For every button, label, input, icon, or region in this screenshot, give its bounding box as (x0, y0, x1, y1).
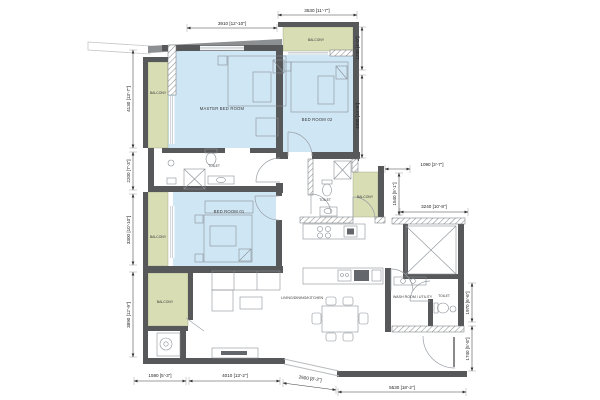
dim-1090-label: 1090 [3'-7"] (420, 162, 443, 167)
dim-2500-label: 2500 [8'-2"] (298, 375, 322, 383)
dim-3910: 3910 [12'-10"] (187, 21, 277, 28)
label-living: LIVING/DINING/KITCHEN (281, 296, 324, 300)
dim-3240: 3240 [10'-8"] (400, 204, 468, 212)
dim-4490-label: 4490 [14'-9"] (355, 103, 360, 129)
floor-plan-drawing: MASTER BED ROOM BED ROOM 02 BED ROOM 01 … (0, 0, 600, 400)
dim-1230-label: 1230 [4'-0"] (355, 36, 360, 59)
label-balcony-mid: BALCONY (357, 195, 374, 199)
door-balcony3 (186, 318, 204, 331)
label-balcony-left2: BALCONY (150, 235, 167, 239)
dim-1970-label: 1970 [6'-6"] (465, 291, 470, 314)
label-bedroom1: BED ROOM 01 (214, 209, 245, 214)
door-toilet-zone (256, 158, 280, 182)
room-bedroom1-fill (173, 192, 276, 266)
dim-4010: 4010 [13'-2"] (189, 373, 280, 381)
dim-4010-label: 4010 [13'-2"] (222, 373, 248, 378)
elevator-shaft-icon (406, 226, 456, 274)
dim-1540: 1540 [5'-1"] (392, 173, 399, 215)
dim-3300-label: 3300 [10'-10"] (126, 216, 131, 244)
shower-icon-toilet2 (334, 161, 351, 179)
dim-3530: 3530 [11'-7"] (278, 8, 357, 15)
balcony-left2-fill (148, 192, 168, 266)
dim-4130-label: 4130 [13'-7"] (126, 86, 131, 112)
door-toilet2 (311, 194, 331, 214)
label-balcony-left3: BALCONY (157, 300, 174, 304)
dim-3890: 3890 [12'-9"] (126, 272, 133, 357)
washbasin-icon-toilet1 (167, 160, 234, 184)
dim-1090: 1090 [3'-7"] (385, 162, 444, 169)
window-master-top (200, 46, 244, 51)
dining-table-icon (312, 297, 368, 341)
entrance-door (423, 336, 455, 368)
room-master-bedroom-fill (168, 51, 276, 148)
floor-plan-page: MASTER BED ROOM BED ROOM 02 BED ROOM 01 … (0, 0, 600, 400)
dim-3890-label: 3890 [12'-9"] (126, 302, 131, 328)
dim-5530-label: 5530 [18'-2"] (389, 385, 415, 390)
washing-machine-icon (157, 333, 180, 356)
label-toilet2: TOILET (319, 198, 331, 202)
dim-1540-label: 1540 [5'-1"] (392, 182, 397, 205)
wc-icon-toilet3 (434, 303, 456, 313)
dim-2200: 2200 [7'-3"] (126, 152, 133, 190)
tv-console-icon (212, 348, 258, 358)
label-master-bedroom: MASTER BED ROOM (200, 106, 245, 111)
dim-2500: 2500 [8'-2"] (283, 375, 336, 390)
label-toilet1: TOILET (208, 164, 220, 168)
dim-2200-label: 2200 [7'-3"] (126, 159, 131, 182)
dim-4130: 4130 [13'-7"] (126, 50, 133, 148)
washbasin-icon-toilet2 (320, 207, 337, 216)
dim-3530-label: 3530 [11'-7"] (304, 8, 329, 13)
wc-icon-toilet2 (322, 180, 332, 196)
dim-3240-label: 3240 [10'-8"] (421, 204, 447, 209)
stove-icon (303, 224, 365, 239)
dim-1590: 1590 [5'-3"] (134, 373, 186, 381)
window-master-left (169, 96, 175, 144)
label-balcony-top: BALCONY (308, 38, 325, 42)
dim-3300: 3300 [10'-10"] (126, 194, 133, 265)
dim-1970: 1970 [6'-6"] (465, 283, 472, 322)
dim-1740-label: 1740 [5'-8"] (465, 337, 470, 360)
kitchen-island-counter (303, 268, 383, 284)
window-bedroom2-balcony (288, 52, 328, 56)
label-balcony-left1: BALCONY (150, 91, 167, 95)
lower-roof-outline (88, 42, 150, 54)
dim-5530: 5530 [18'-2"] (338, 385, 466, 392)
label-washroom: WASH ROOM / UTILITY (393, 295, 433, 299)
label-bedroom2: BED ROOM 02 (302, 117, 333, 122)
dim-3910-label: 3910 [12'-10"] (218, 21, 246, 26)
sofa-icon (212, 271, 280, 311)
label-toilet3: TOILET (438, 294, 450, 298)
dim-1740: 1740 [5'-8"] (465, 326, 472, 371)
dim-1590-label: 1590 [5'-3"] (148, 373, 171, 378)
balcony-left1-fill (148, 62, 168, 148)
window-bedroom1-left (169, 206, 175, 258)
